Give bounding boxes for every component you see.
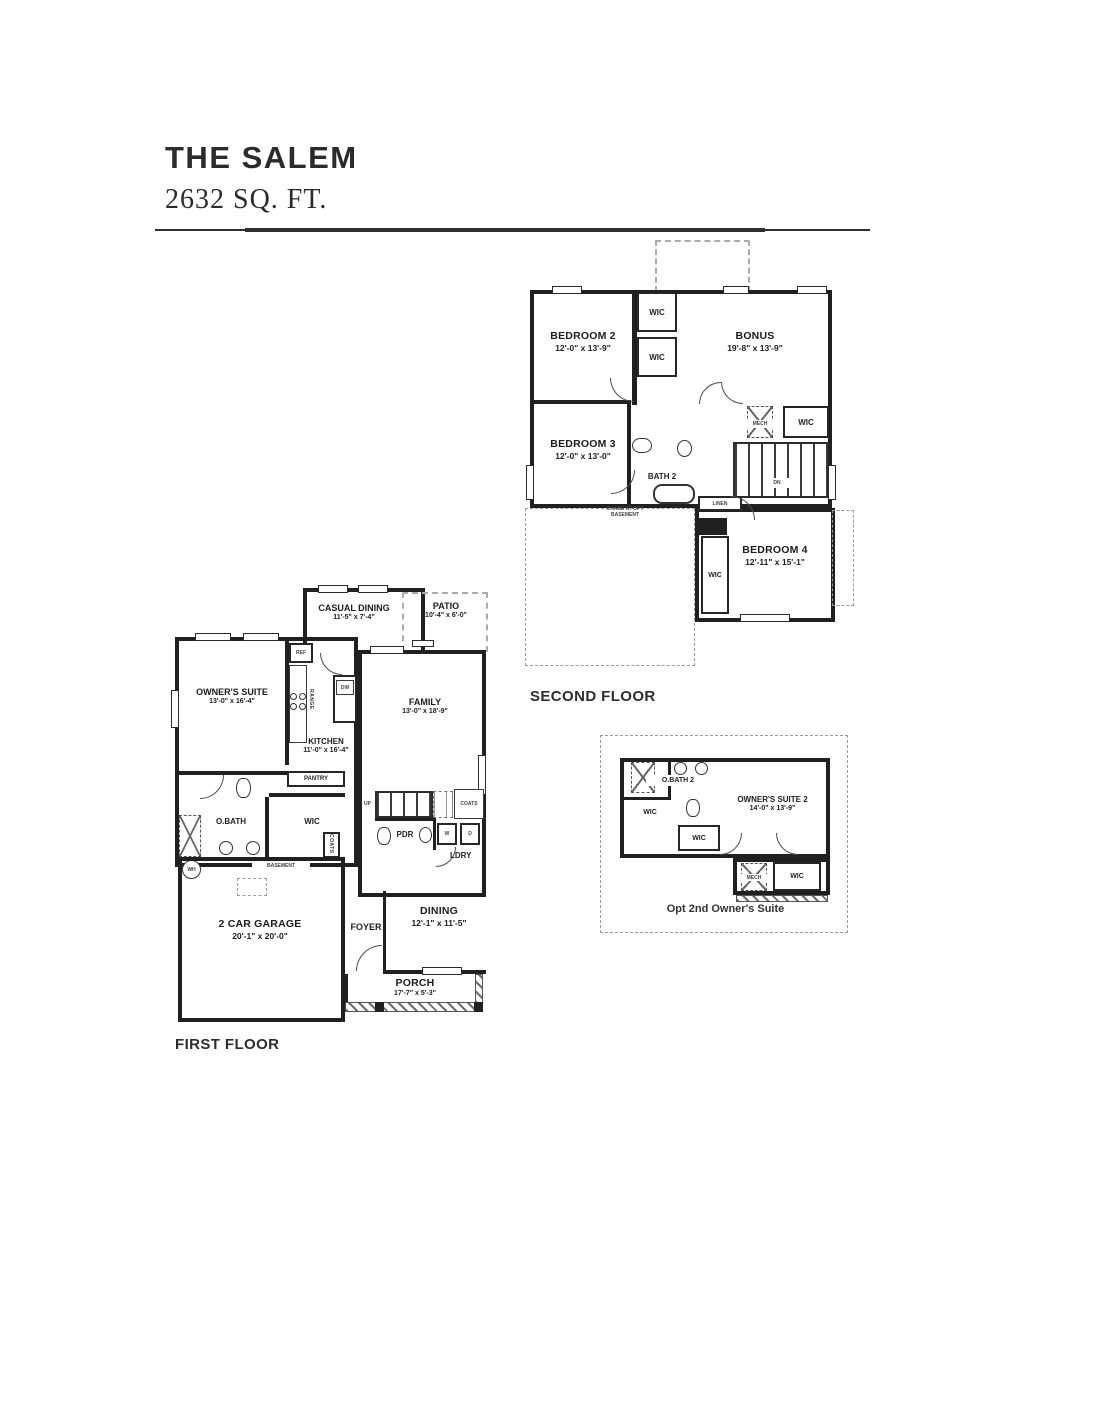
sink-icon (677, 440, 692, 457)
bonus-dims: 19'-8" x 13'-9" (690, 343, 820, 354)
wall (265, 797, 269, 859)
stairs-up (375, 791, 433, 818)
kitchen-dims: 11'-0" x 16'-4" (288, 747, 364, 756)
dryer: D (460, 823, 480, 845)
owners-suite2-dims: 14'-0" x 13'-9" (720, 805, 825, 814)
casual-dining-name: CASUAL DINING (298, 603, 410, 614)
sink-icon (246, 841, 260, 855)
second-floor-caption: SECOND FLOOR (530, 688, 656, 705)
wic-mid-closet: WIC (678, 825, 720, 851)
wic-mid-label: WIC (692, 835, 706, 842)
suite2-edge-hatch (736, 895, 828, 902)
foyer-label: FOYER (346, 920, 386, 933)
dining-name: DINING (395, 905, 483, 918)
range-label: RANGE (308, 689, 314, 710)
wic-mid-closet: WIC (637, 337, 677, 377)
wic-mid-label: WIC (649, 353, 665, 362)
stairs-up-label: UP (364, 801, 371, 807)
stairs-down (733, 442, 829, 498)
window (797, 286, 827, 294)
owners-suite-name: OWNER'S SUITE (182, 687, 282, 698)
patio-name: PATIO (405, 601, 487, 612)
wall (697, 518, 727, 535)
window (552, 286, 582, 294)
obath-label: O.BATH (202, 815, 260, 828)
linen-label: LINEN (713, 501, 728, 507)
pdr-label: PDR (391, 828, 419, 841)
wall (345, 974, 348, 1002)
toilet-icon (377, 827, 391, 845)
optional-suite-plan: O.BATH 2 WIC WIC OWNER'S SUITE 2 14'-0" … (598, 735, 853, 940)
stairs-up-dashed (433, 791, 453, 818)
wall (433, 818, 436, 850)
porch-edge-hatch (475, 974, 483, 1004)
attic-access-outline (237, 878, 267, 896)
garage-dims: 20'-1" x 20'-0" (195, 931, 325, 942)
sink-icon (695, 762, 708, 775)
bedroom3-dims: 12'-0" x 13'-0" (535, 451, 631, 462)
garage-label: 2 CAR GARAGE 20'-1" x 20'-0" (195, 918, 325, 942)
family-label: FAMILY 13'-0" x 18'-9" (375, 697, 475, 717)
front-door-arc (356, 945, 382, 971)
wall (620, 797, 670, 800)
bedroom2-label: BEDROOM 2 12'-0" x 13'-9" (535, 330, 631, 354)
bedroom2-name: BEDROOM 2 (535, 330, 631, 343)
first-floor-plan: CASUAL DINING 11'-5" x 7'-4" PATIO 10'-4… (170, 585, 510, 1035)
window (171, 690, 179, 728)
ref-label: REF (296, 650, 306, 656)
dw-label: DW (341, 685, 349, 691)
optional-area-outline (655, 240, 750, 292)
range-burner (299, 703, 306, 710)
bedroom4-dims: 12'-11" x 15'-1" (720, 557, 830, 568)
sink-icon (219, 841, 233, 855)
dishwasher: DW (336, 680, 354, 695)
bedroom4-label: BEDROOM 4 12'-11" x 15'-1" (720, 544, 830, 568)
range-burner (290, 703, 297, 710)
window (828, 465, 836, 500)
window (422, 967, 462, 975)
optional-suite-caption: Opt 2nd Owner's Suite (638, 903, 813, 915)
first-floor-caption: FIRST FLOOR (175, 1036, 279, 1053)
bonus-name: BONUS (690, 330, 820, 343)
toilet-icon (686, 799, 700, 817)
porch-dims: 17'-7" x 5'-3" (370, 990, 460, 999)
wall (375, 818, 435, 821)
chase-note-line2: BASEMENT (595, 512, 655, 518)
header-divider-thick (245, 228, 765, 232)
second-floor-plan: BEDROOM 2 12'-0" x 13'-9" BONUS 19'-8" x… (525, 238, 865, 683)
range-burner (290, 693, 297, 700)
shower (179, 815, 201, 857)
coats-stair-label: COATS (454, 800, 484, 808)
wall (269, 793, 345, 797)
dining-dims: 12'-1" x 11'-5" (395, 918, 483, 929)
porch-post (375, 1002, 384, 1012)
patio-dims: 10'-4" x 6'-0" (405, 612, 487, 621)
owners-suite-label: OWNER'S SUITE 13'-0" x 16'-4" (182, 687, 282, 707)
wic-label: WIC (286, 815, 338, 828)
mech-label: MECH (744, 420, 776, 428)
bonus-label: BONUS 19'-8" x 13'-9" (690, 330, 820, 354)
toilet-icon (236, 778, 251, 798)
kitchen-label: KITCHEN 11'-0" x 16'-4" (288, 737, 364, 756)
pantry-label: PANTRY (304, 776, 328, 782)
garage-name: 2 CAR GARAGE (195, 918, 325, 931)
wic-top-closet: WIC (637, 292, 677, 332)
wic-right-label: WIC (790, 873, 804, 880)
ldry-label: LDRY (450, 851, 471, 860)
window (526, 465, 534, 500)
bath2-label: BATH 2 (633, 470, 691, 482)
dashed-outline-lower-left (525, 508, 695, 666)
patio-label: PATIO 10'-4" x 6'-0" (405, 601, 487, 621)
wic-top-label: WIC (649, 308, 665, 317)
porch-edge-hatch (345, 1002, 483, 1012)
dryer-label: D (468, 831, 472, 837)
sink-icon (674, 762, 687, 775)
washer-label: W (445, 831, 450, 837)
window (195, 633, 231, 641)
window (358, 585, 388, 593)
porch-label: PORCH 17'-7" x 5'-3" (370, 977, 460, 999)
owners-suite2-label: OWNER'S SUITE 2 14'-0" x 13'-9" (720, 795, 825, 814)
stairs-down-label: DN (765, 478, 789, 488)
porch-name: PORCH (370, 977, 460, 990)
owners-suite2-name: OWNER'S SUITE 2 (720, 795, 825, 805)
obath2-label: O.BATH 2 (646, 775, 710, 786)
toilet-icon (632, 438, 652, 453)
bedroom3-label: BEDROOM 3 12'-0" x 13'-0" (535, 438, 631, 462)
wic-right-label: WIC (798, 418, 814, 427)
family-dims: 13'-0" x 18'-9" (375, 708, 475, 717)
dining-label: DINING 12'-1" x 11'-5" (395, 905, 483, 929)
casual-dining-dims: 11'-5" x 7'-4" (298, 614, 410, 623)
bedroom2-dims: 12'-0" x 13'-9" (535, 343, 631, 354)
refrigerator: REF (289, 643, 313, 663)
window (318, 585, 348, 593)
window (243, 633, 279, 641)
wic-left-label: WIC (630, 807, 670, 818)
window (740, 614, 790, 622)
window (412, 640, 434, 647)
bathtub-icon (653, 484, 695, 504)
wall (175, 771, 287, 775)
floorplan-sheet: THE SALEM 2632 SQ. FT. BEDROOM 2 12'-0" … (0, 0, 1097, 1419)
pantry-closet: PANTRY (287, 771, 345, 787)
washer: W (437, 823, 457, 845)
wic-right-closet: WIC (773, 862, 821, 891)
chase-note: CHASE AT OPT BASEMENT (595, 506, 655, 518)
sink-icon (419, 827, 432, 843)
porch-post (474, 1002, 483, 1012)
window (370, 646, 404, 654)
wic-right-closet: WIC (783, 406, 829, 438)
family-name: FAMILY (375, 697, 475, 708)
coats-closet-label: COATS (328, 834, 334, 854)
casual-dining-label: CASUAL DINING 11'-5" x 7'-4" (298, 603, 410, 623)
page-title: THE SALEM (165, 140, 358, 176)
page-subtitle: 2632 SQ. FT. (165, 184, 327, 216)
bedroom3-name: BEDROOM 3 (535, 438, 631, 451)
range-burner (299, 693, 306, 700)
mech-label: MECH (739, 874, 769, 881)
kitchen-name: KITCHEN (288, 737, 364, 747)
dashed-outline-right (832, 510, 854, 606)
wic-bedroom4-label: WIC (697, 568, 733, 582)
wall (534, 400, 631, 404)
owners-suite-dims: 13'-0" x 16'-4" (182, 698, 282, 707)
window (723, 286, 749, 294)
bedroom4-name: BEDROOM 4 (720, 544, 830, 557)
